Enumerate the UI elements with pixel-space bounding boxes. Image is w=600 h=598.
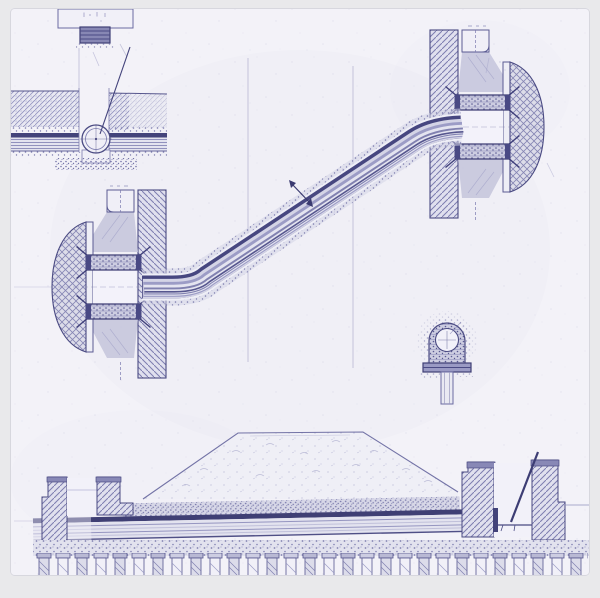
blueprint-print	[0, 0, 600, 598]
pile-row	[36, 553, 588, 576]
blueprint-canvas	[0, 0, 600, 598]
